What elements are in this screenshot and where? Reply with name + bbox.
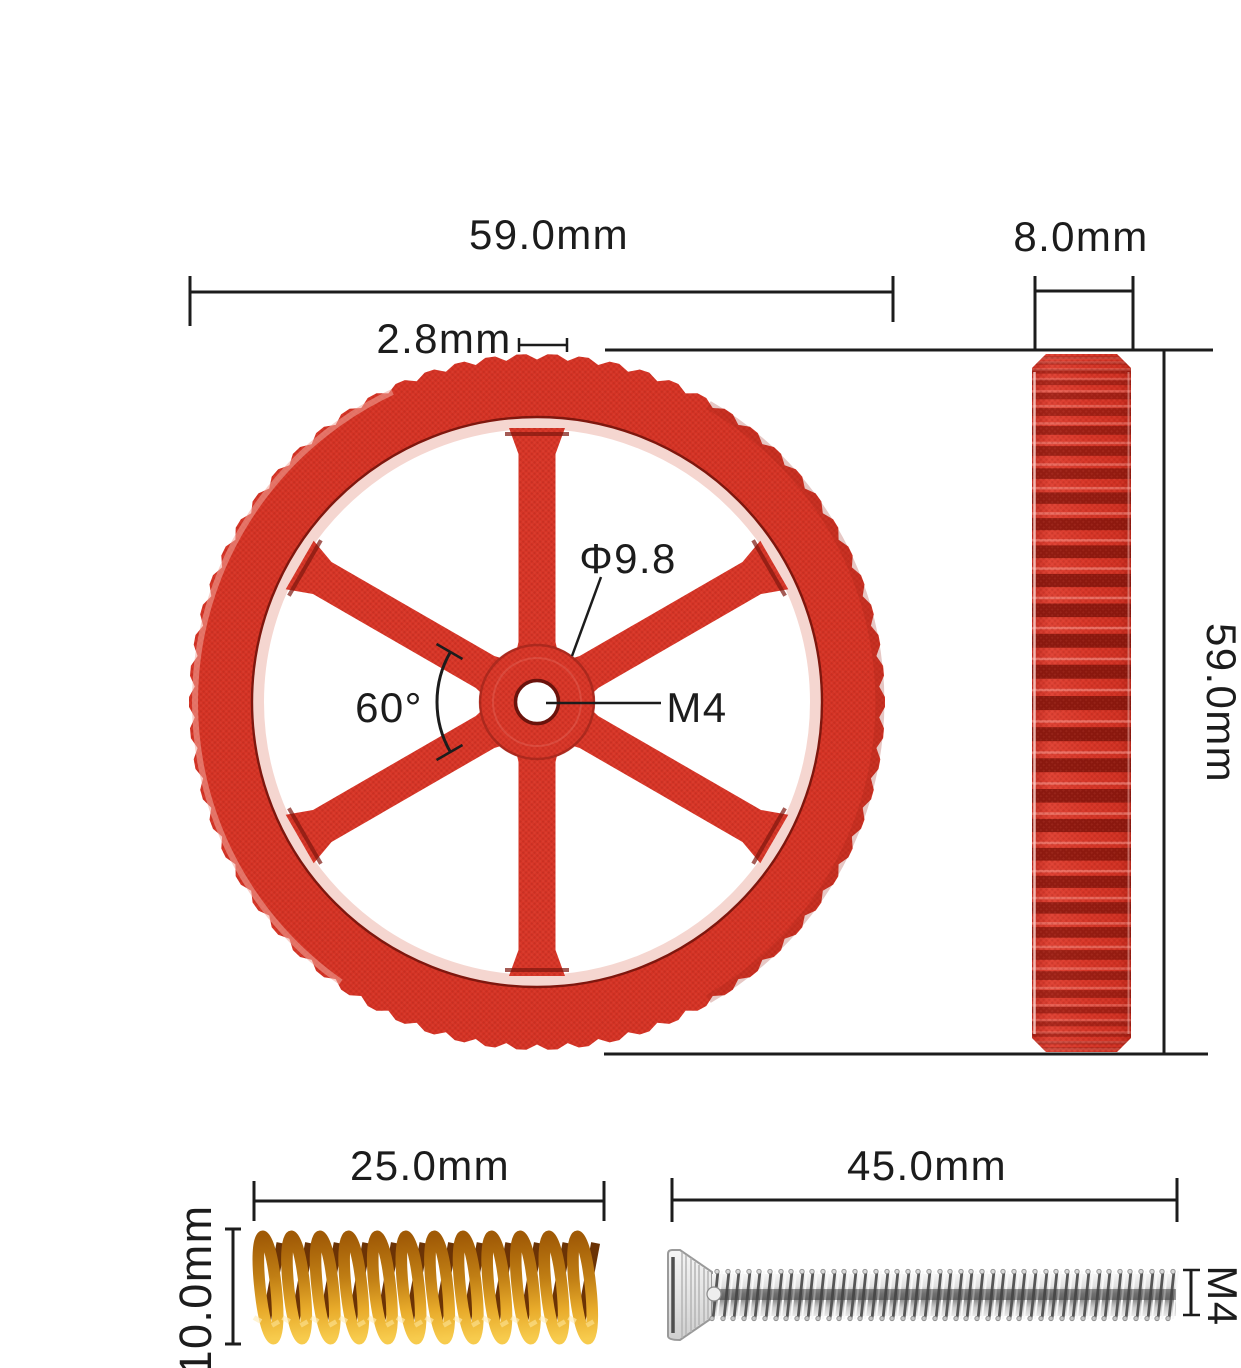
svg-text:59.0mm: 59.0mm bbox=[469, 211, 629, 258]
svg-text:M4: M4 bbox=[666, 684, 727, 731]
svg-text:59.0mm: 59.0mm bbox=[1198, 623, 1241, 783]
svg-text:M4: M4 bbox=[1199, 1265, 1241, 1326]
svg-text:25.0mm: 25.0mm bbox=[350, 1142, 510, 1189]
svg-text:8.0mm: 8.0mm bbox=[1013, 213, 1148, 260]
svg-text:10.0mm: 10.0mm bbox=[170, 1205, 221, 1368]
svg-text:60°: 60° bbox=[355, 684, 423, 731]
svg-text:Φ9.8: Φ9.8 bbox=[579, 535, 677, 582]
svg-text:45.0mm: 45.0mm bbox=[847, 1142, 1007, 1189]
svg-text:2.8mm: 2.8mm bbox=[376, 315, 511, 362]
